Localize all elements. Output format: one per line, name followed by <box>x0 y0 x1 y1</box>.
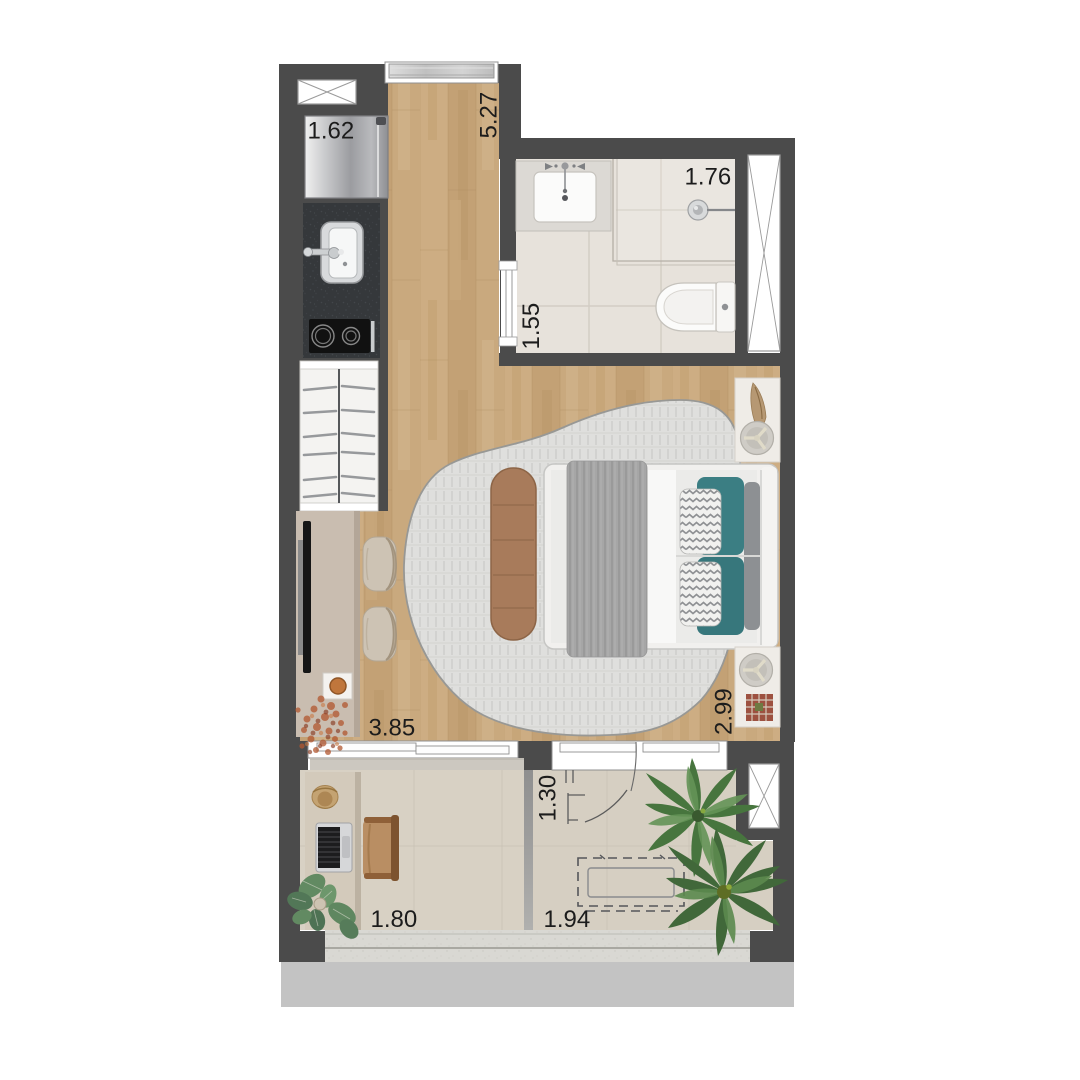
svg-text:2.99: 2.99 <box>711 688 738 735</box>
svg-text:1.94: 1.94 <box>544 906 591 933</box>
svg-text:5.27: 5.27 <box>476 92 503 139</box>
svg-text:3.85: 3.85 <box>369 715 416 742</box>
svg-text:1.62: 1.62 <box>308 118 355 145</box>
svg-text:1.80: 1.80 <box>371 906 418 933</box>
svg-text:1.76: 1.76 <box>685 164 732 191</box>
svg-text:1.30: 1.30 <box>535 775 562 822</box>
svg-text:1.55: 1.55 <box>518 303 545 350</box>
